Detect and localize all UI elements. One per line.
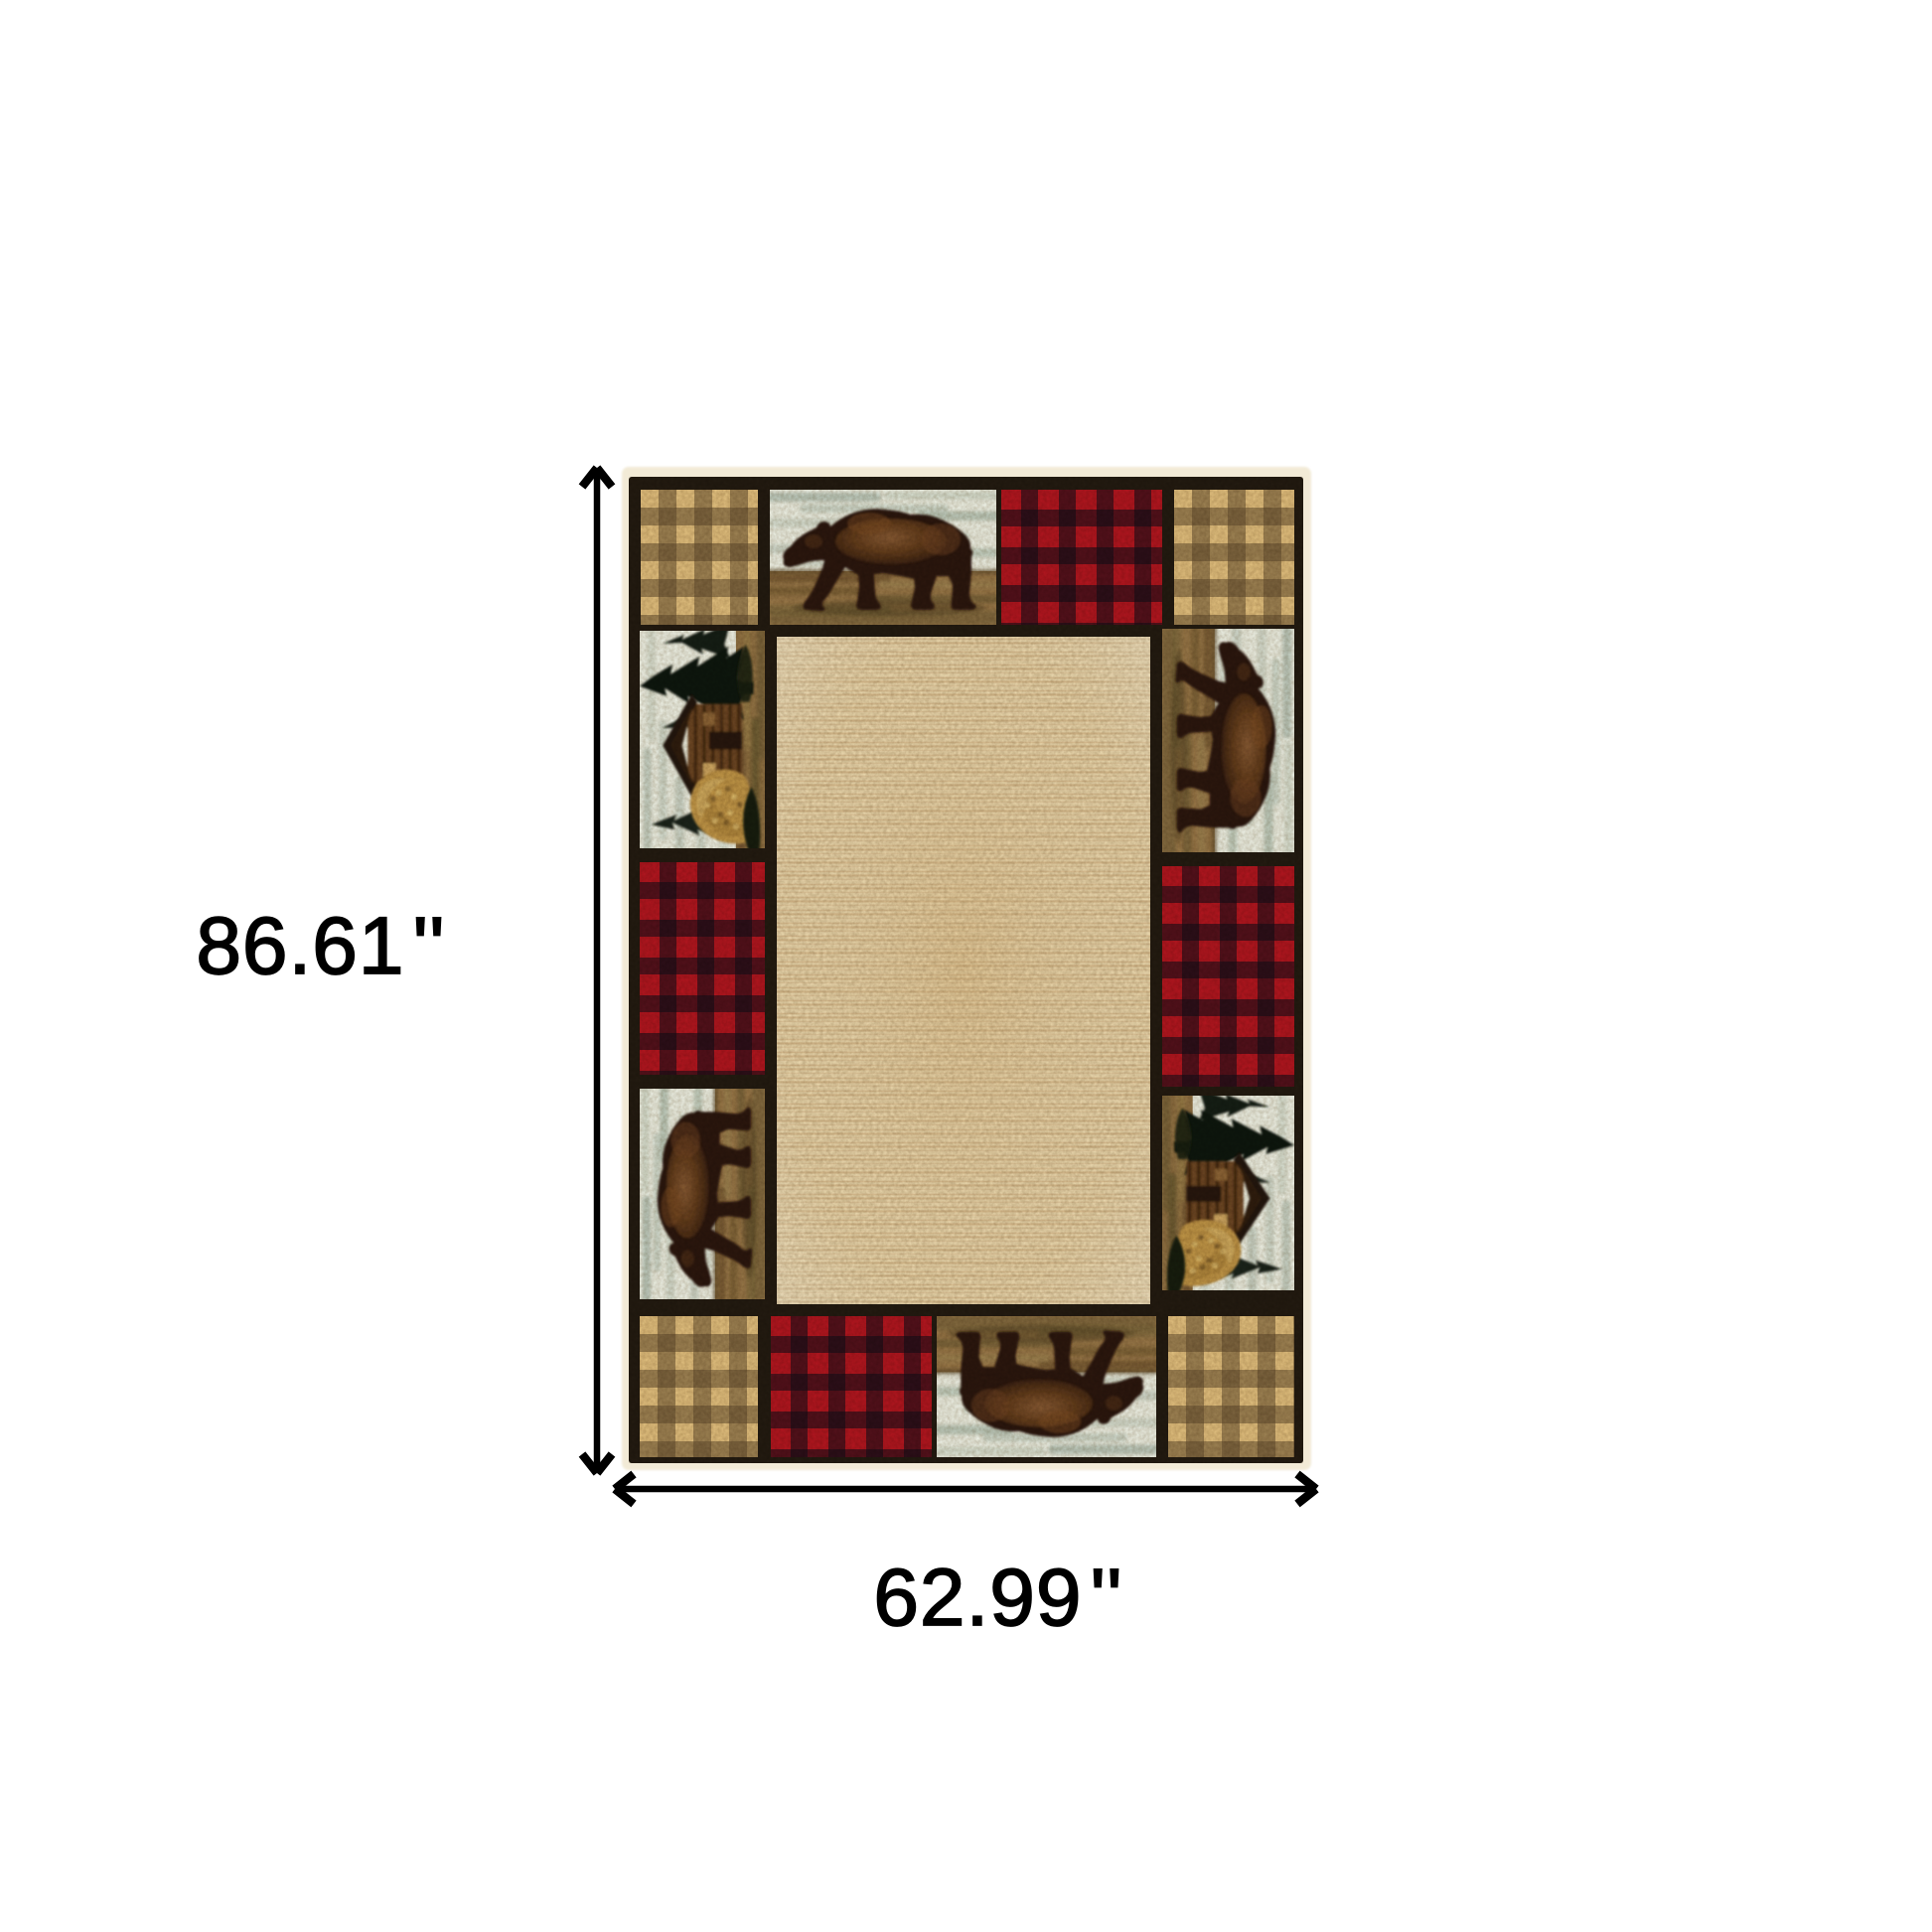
svg-text:86.61 '': 86.61 '' [196,901,445,991]
svg-text:62.99 '': 62.99 '' [873,1553,1122,1643]
